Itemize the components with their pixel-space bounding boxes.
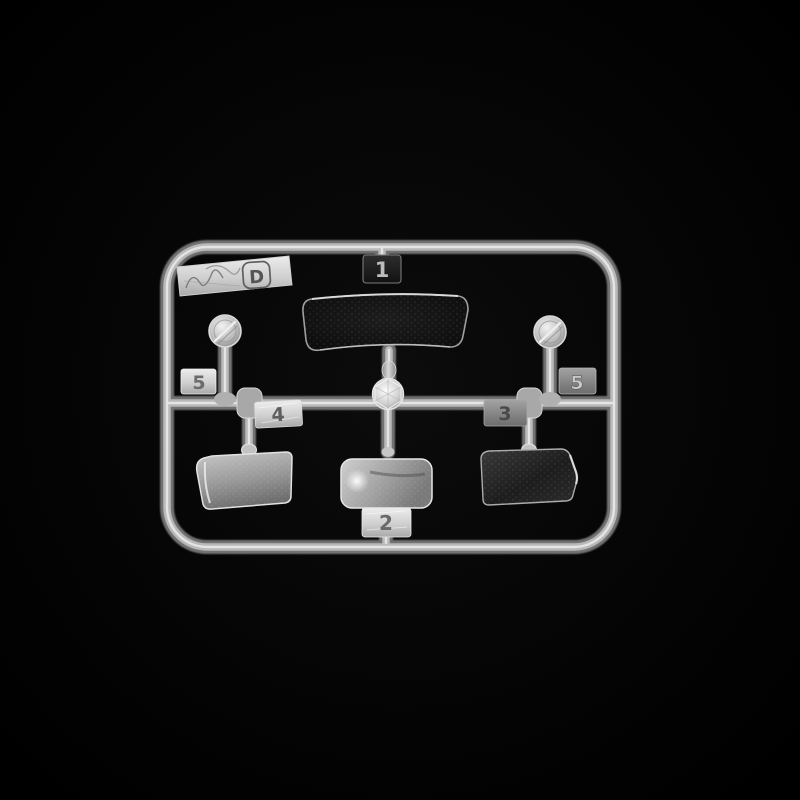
left-side-window-texture <box>197 452 292 509</box>
part-tag-right-lens: 5 <box>559 368 596 394</box>
rear-window-flash-hotspot <box>345 469 369 493</box>
sprue-photo-canvas: D 1 5 5 4 3 2 <box>0 0 800 800</box>
part-tag-right-window: 3 <box>484 400 527 426</box>
left-round-lens-part <box>209 315 241 347</box>
right-lens-stem-foot <box>539 392 561 406</box>
left-side-window-part <box>197 452 292 509</box>
rear-window-gate-bulb <box>382 447 395 457</box>
tag-2-number: 2 <box>379 511 393 535</box>
tag-4-number: 4 <box>271 404 285 427</box>
tag-1-number: 1 <box>375 258 390 282</box>
windshield-gate-bulb <box>382 361 396 379</box>
left-lens-stem-foot <box>214 392 236 406</box>
part-tag-left-window: 4 <box>254 400 302 428</box>
right-round-lens-part <box>534 316 566 348</box>
right-side-window-texture <box>481 449 577 505</box>
tag-5-left-number: 5 <box>192 372 205 394</box>
right-side-window-part <box>481 449 577 505</box>
windshield-part <box>303 294 468 350</box>
sprue-letter: D <box>248 266 264 288</box>
part-tag-rear-window: 2 <box>362 508 411 537</box>
part-tag-windshield: 1 <box>363 255 401 283</box>
center-jewel-part <box>373 379 404 410</box>
sprue-photo: D 1 5 5 4 3 2 <box>0 0 800 800</box>
part-tag-left-lens: 5 <box>181 369 216 394</box>
rear-window-part <box>341 459 432 508</box>
tag-5-right-number: 5 <box>570 372 583 394</box>
tag-3-number: 3 <box>498 403 511 425</box>
windshield-texture <box>303 294 468 350</box>
